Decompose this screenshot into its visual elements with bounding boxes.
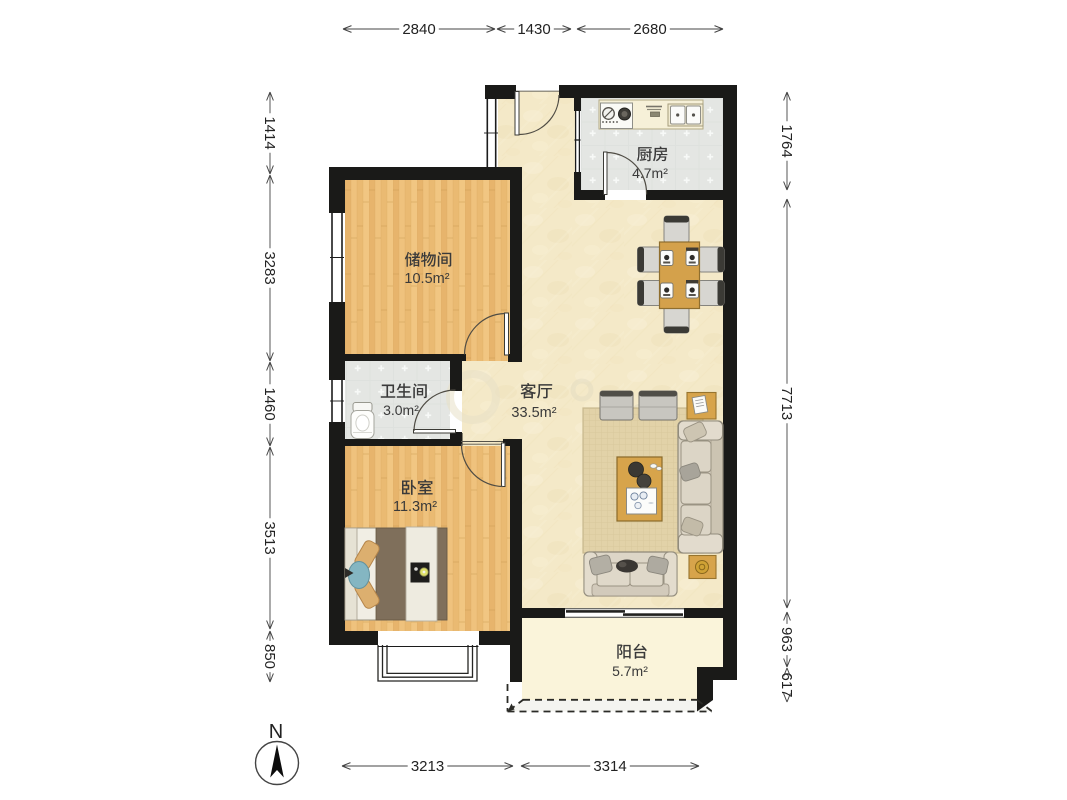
svg-text:617: 617 xyxy=(778,672,795,697)
svg-text:1764: 1764 xyxy=(778,124,795,157)
svg-text:7713: 7713 xyxy=(778,387,795,420)
svg-text:3513: 3513 xyxy=(261,521,278,554)
svg-text:1414: 1414 xyxy=(261,116,278,149)
svg-text:963: 963 xyxy=(778,627,795,652)
svg-text:5.7m²: 5.7m² xyxy=(612,663,648,679)
svg-text:11.3m²: 11.3m² xyxy=(393,499,437,515)
svg-text:N: N xyxy=(269,721,283,743)
svg-text:1460: 1460 xyxy=(261,387,278,420)
svg-text:33.5m²: 33.5m² xyxy=(511,405,556,421)
svg-text:10.5m²: 10.5m² xyxy=(404,271,449,287)
svg-text:2840: 2840 xyxy=(402,21,435,38)
svg-text:2680: 2680 xyxy=(633,21,666,38)
svg-text:3213: 3213 xyxy=(411,758,444,775)
svg-text:1430: 1430 xyxy=(517,21,550,38)
svg-text:3.0m²: 3.0m² xyxy=(383,402,419,418)
svg-text:3314: 3314 xyxy=(593,758,626,775)
svg-text:3283: 3283 xyxy=(261,251,278,284)
svg-text:850: 850 xyxy=(261,644,278,669)
svg-text:4.7m²: 4.7m² xyxy=(632,165,668,181)
